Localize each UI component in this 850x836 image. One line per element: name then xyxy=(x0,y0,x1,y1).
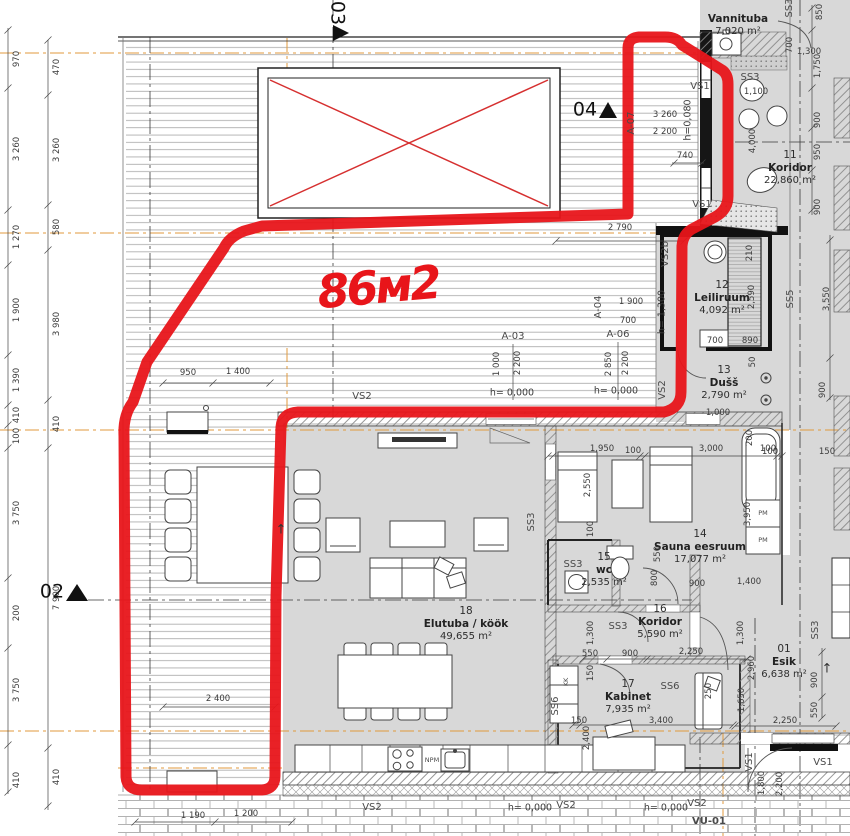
dim-label: 1,300 xyxy=(587,621,596,645)
dim-label: 3,550 xyxy=(823,287,832,311)
level-mark: h=0,080 xyxy=(683,99,693,140)
dim-label: 900 xyxy=(689,580,705,589)
tag-kk: KK xyxy=(563,678,570,687)
room-number-koridor: 16 xyxy=(653,604,666,615)
dim-label: 210 xyxy=(746,245,755,261)
dim-label: 2,590 xyxy=(748,285,757,309)
room-number-du: 13 xyxy=(717,365,730,376)
dim-label: 900 xyxy=(814,112,823,128)
tag-vs2b: VS2b xyxy=(661,241,671,267)
dim-label: 890 xyxy=(742,337,758,346)
dim-label: 2,200 xyxy=(776,772,785,796)
dim-label: 1 400 xyxy=(226,368,250,377)
dim-label: 410 xyxy=(53,769,62,785)
tag-a-07: A-07 xyxy=(627,112,637,135)
dim-label: 900 xyxy=(819,382,828,398)
dim-label: 550 xyxy=(582,650,598,659)
dim-label: 50 xyxy=(749,357,758,368)
dim-label: 700 xyxy=(620,317,636,326)
tag-ss3: SS3 xyxy=(785,0,795,18)
dim-label: 3 750 xyxy=(13,501,22,525)
dim-label: 1 190 xyxy=(181,812,205,821)
dim-label: 150 xyxy=(587,665,596,681)
dim-label: 250 xyxy=(705,683,714,699)
room-name-koridor: Koridor xyxy=(638,617,682,628)
handwritten-area-annotation: 86м2 xyxy=(315,259,440,315)
dim-label: 2 200 xyxy=(653,128,677,137)
dim-label: 410 xyxy=(13,772,22,788)
room-name-esik: Esik xyxy=(772,657,796,668)
tag-a-03: A-03 xyxy=(502,332,525,342)
dim-label: 1,300 xyxy=(737,621,746,645)
dim-label: 1 270 xyxy=(13,225,22,249)
level-mark: h= 1,300 xyxy=(657,290,667,334)
dim-label: 2 200 xyxy=(514,351,523,375)
tag-ss3: SS3 xyxy=(811,620,821,639)
tag-pm: PM xyxy=(758,537,768,544)
level-mark: h= 0,000 xyxy=(490,388,534,398)
tag-ss3: SS3 xyxy=(740,73,759,83)
tag-a-06: A-06 xyxy=(607,330,630,340)
tag-ss6: SS6 xyxy=(551,696,561,715)
dim-label: 7 900 xyxy=(53,586,62,610)
dim-label: 950 xyxy=(180,369,196,378)
dim-label: 3 260 xyxy=(13,137,22,161)
dim-label: 1,950 xyxy=(590,445,614,454)
dim-label: 2 790 xyxy=(608,224,632,233)
dim-label: 1,750 xyxy=(814,54,823,78)
dim-label: 100 xyxy=(13,428,22,444)
dim-label: 800 xyxy=(651,570,660,586)
dim-label: 3 980 xyxy=(53,312,62,336)
tag-pm: PM xyxy=(758,510,768,517)
dim-label: 2,250 xyxy=(773,717,797,726)
section-marker-label-03: 03 xyxy=(328,1,347,25)
dim-label: 1 900 xyxy=(619,298,643,307)
dim-label: 3,950 xyxy=(744,502,753,526)
dim-label: 2,400 xyxy=(583,726,592,750)
text-overlay: Vannituba7,020 m²11Koridor22,860 m²12Lei… xyxy=(0,0,850,836)
dim-label: 410 xyxy=(53,416,62,432)
dim-label: 1,650 xyxy=(738,688,747,712)
dim-label: 740 xyxy=(677,152,693,161)
dim-label: 1 900 xyxy=(13,298,22,322)
tag-ss3: SS3 xyxy=(608,622,627,632)
tag-npm: NPM xyxy=(425,757,439,764)
direction-arrow-icon: ↑ xyxy=(822,663,833,676)
dim-label: 850 xyxy=(816,4,825,20)
room-number-sauna-eesruum: 14 xyxy=(693,529,706,540)
tag-vu-01: VU-01 xyxy=(692,817,726,827)
room-area-leiliruum: 4,092 m² xyxy=(699,306,745,316)
floor-plan: Vannituba7,020 m²11Koridor22,860 m²12Lei… xyxy=(0,0,850,836)
dim-label: 200 xyxy=(746,430,755,446)
dim-label: 550 xyxy=(811,702,820,718)
dim-label: 1 390 xyxy=(13,368,22,392)
direction-arrow-icon: ↑ xyxy=(276,524,287,537)
dim-label: 1 000 xyxy=(493,352,502,376)
dim-label: 900 xyxy=(811,672,820,688)
dim-label: 970 xyxy=(13,51,22,67)
dim-label: 2,960 xyxy=(748,656,757,680)
room-number-leiliruum: 12 xyxy=(715,280,728,291)
dim-label: 550 xyxy=(654,546,663,562)
level-mark: h= 0,000 xyxy=(508,803,552,813)
room-name-du: Dušš xyxy=(710,378,739,389)
dim-label: 700 xyxy=(786,37,795,53)
level-mark: h= 0,000 xyxy=(594,386,638,396)
tag-ss5: SS5 xyxy=(786,289,796,308)
room-name-sauna-eesruum: Sauna eesruum xyxy=(654,542,746,553)
dim-label: 1 200 xyxy=(234,810,258,819)
dim-label: 900 xyxy=(622,650,638,659)
dim-label: 3 750 xyxy=(13,678,22,702)
room-area-koridor: 5,590 m² xyxy=(637,630,683,640)
tag-ss6: SS6 xyxy=(660,682,679,692)
dim-label: 950 xyxy=(814,144,823,160)
room-area-vannituba: 7,020 m² xyxy=(715,27,761,37)
dim-label: 1,400 xyxy=(737,578,761,587)
room-name-vannituba: Vannituba xyxy=(708,14,768,25)
room-area-elutuba-k-k: 49,655 m² xyxy=(440,632,492,642)
room-number-koridor: 11 xyxy=(783,150,796,161)
room-area-wc: 2,535 m² xyxy=(581,578,627,588)
dim-label: 2 400 xyxy=(206,695,230,704)
dim-label: 2 200 xyxy=(622,351,631,375)
dim-label: 4,000 xyxy=(749,129,758,153)
dim-label: 100 xyxy=(625,447,641,456)
section-marker-label-04: 04 xyxy=(573,101,597,120)
dim-label: 150 xyxy=(819,448,835,457)
dim-label: 3,400 xyxy=(649,717,673,726)
tag-vs1: VS1 xyxy=(813,758,833,768)
dim-label: 1,100 xyxy=(744,88,768,97)
room-number-elutuba-k-k: 18 xyxy=(459,606,472,617)
dim-label: 3 260 xyxy=(653,111,677,120)
dim-label: 200 xyxy=(13,605,22,621)
tag-ss3: SS3 xyxy=(563,560,582,570)
room-name-kabinet: Kabinet xyxy=(605,692,651,703)
dim-label: 3,000 xyxy=(699,445,723,454)
tag-vs2: VS2 xyxy=(556,801,576,811)
dim-label: 2,250 xyxy=(679,648,703,657)
level-mark: h= 0,000 xyxy=(644,803,688,813)
dim-label: 100 xyxy=(587,521,596,537)
tag-vs1: VS1 xyxy=(690,82,710,92)
dim-label: 1,800 xyxy=(758,771,767,795)
room-area-esik: 6,638 m² xyxy=(761,670,807,680)
dim-label: 2 850 xyxy=(605,352,614,376)
tag-vs1: VS1 xyxy=(745,752,755,772)
room-number-kabinet: 17 xyxy=(621,679,634,690)
dim-label: 410 xyxy=(13,407,22,423)
dim-label: 2,550 xyxy=(584,473,593,497)
room-area-sauna-eesruum: 17,077 m² xyxy=(674,555,726,565)
room-area-du: 2,790 m² xyxy=(701,391,747,401)
tag-vs2: VS2 xyxy=(352,392,372,402)
room-area-koridor: 22,860 m² xyxy=(764,176,816,186)
room-area-kabinet: 7,935 m² xyxy=(605,705,651,715)
room-name-leiliruum: Leiliruum xyxy=(694,293,750,304)
tag-a-04: A-04 xyxy=(594,296,604,319)
tag-ss3: SS3 xyxy=(527,512,537,531)
room-name-wc: wc xyxy=(596,565,612,576)
tag-vs2: VS2 xyxy=(658,380,668,400)
dim-label: 580 xyxy=(53,219,62,235)
tag-vs2: VS2 xyxy=(687,799,707,809)
dim-label: 100 xyxy=(762,448,778,457)
tag-vs2: VS2 xyxy=(362,803,382,813)
dim-label: 1,000 xyxy=(706,409,730,418)
room-name-elutuba-k-k: Elutuba / köök xyxy=(424,619,509,630)
dim-label: 3 260 xyxy=(53,138,62,162)
room-name-koridor: Koridor xyxy=(768,163,812,174)
dim-label: 700 xyxy=(707,337,723,346)
room-number-esik: 01 xyxy=(777,644,790,655)
room-number-wc: 15 xyxy=(597,552,610,563)
dim-label: 470 xyxy=(53,59,62,75)
dim-label: 900 xyxy=(814,199,823,215)
tag-vs1: VS1 xyxy=(692,200,712,210)
dim-label: 150 xyxy=(571,717,587,726)
